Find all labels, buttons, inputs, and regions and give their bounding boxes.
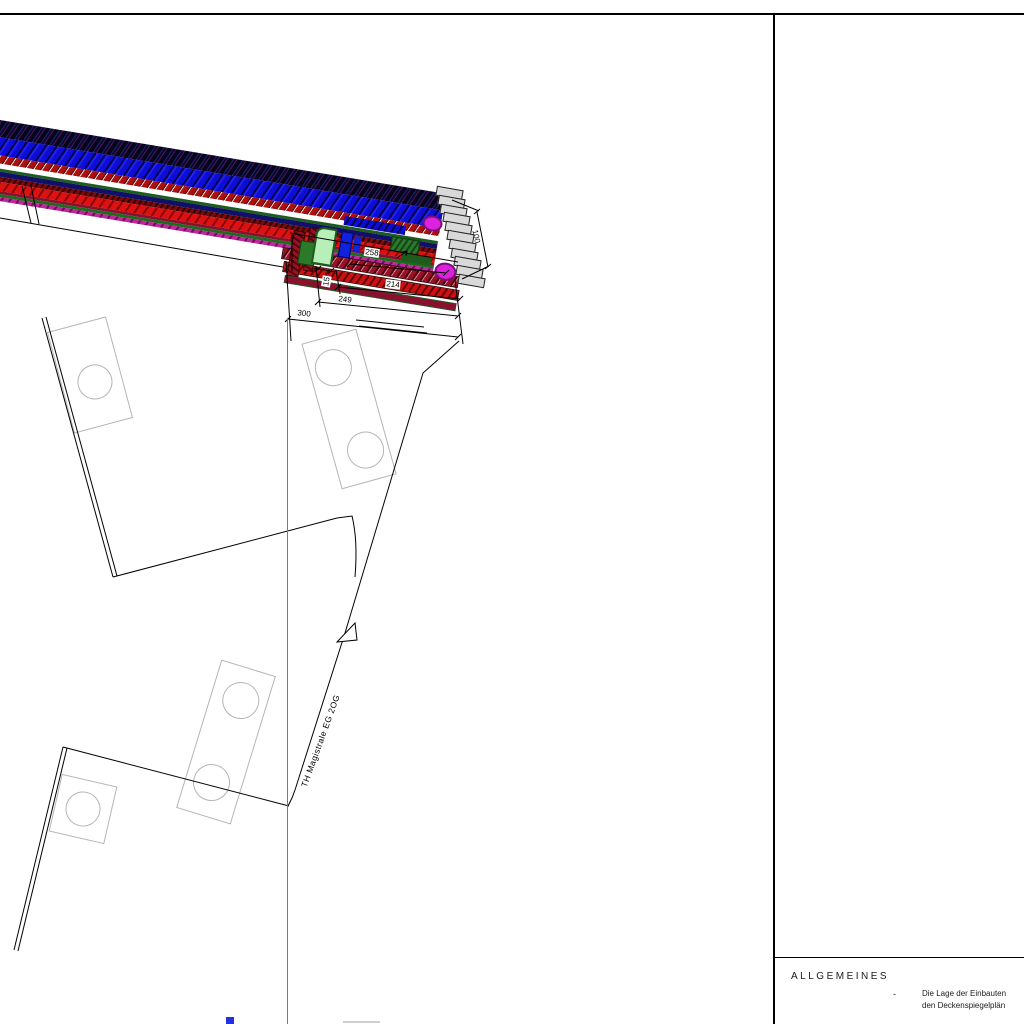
blue-symbol-fragment (226, 1017, 234, 1024)
dimension-label-15: 15 (321, 275, 332, 287)
reference-line-cyan (287, 318, 288, 1024)
sheet-border-top (0, 13, 1024, 15)
drawing-lines (0, 0, 1024, 1024)
building-outline (0, 186, 459, 951)
note-bullet: - (893, 989, 896, 999)
section-title: ALLGEMEINES (791, 971, 889, 982)
dimension-label-258: 258 (364, 247, 380, 258)
note-line-2: den Deckenspiegelplän (922, 1000, 1006, 1012)
dimension-label-249: 249 (337, 294, 353, 305)
dimension-label-214: 214 (385, 279, 401, 290)
title-panel-border (773, 14, 775, 1024)
gray-line-fragment (343, 1021, 380, 1023)
title-panel-separator (775, 957, 1024, 958)
dimension-label-300: 300 (296, 308, 312, 319)
note-text: Die Lage der Einbauten den Deckenspiegel… (922, 988, 1006, 1011)
note-line-1: Die Lage der Einbauten (922, 988, 1006, 1000)
column-footings (48, 317, 396, 844)
dimension-lines (285, 200, 491, 344)
